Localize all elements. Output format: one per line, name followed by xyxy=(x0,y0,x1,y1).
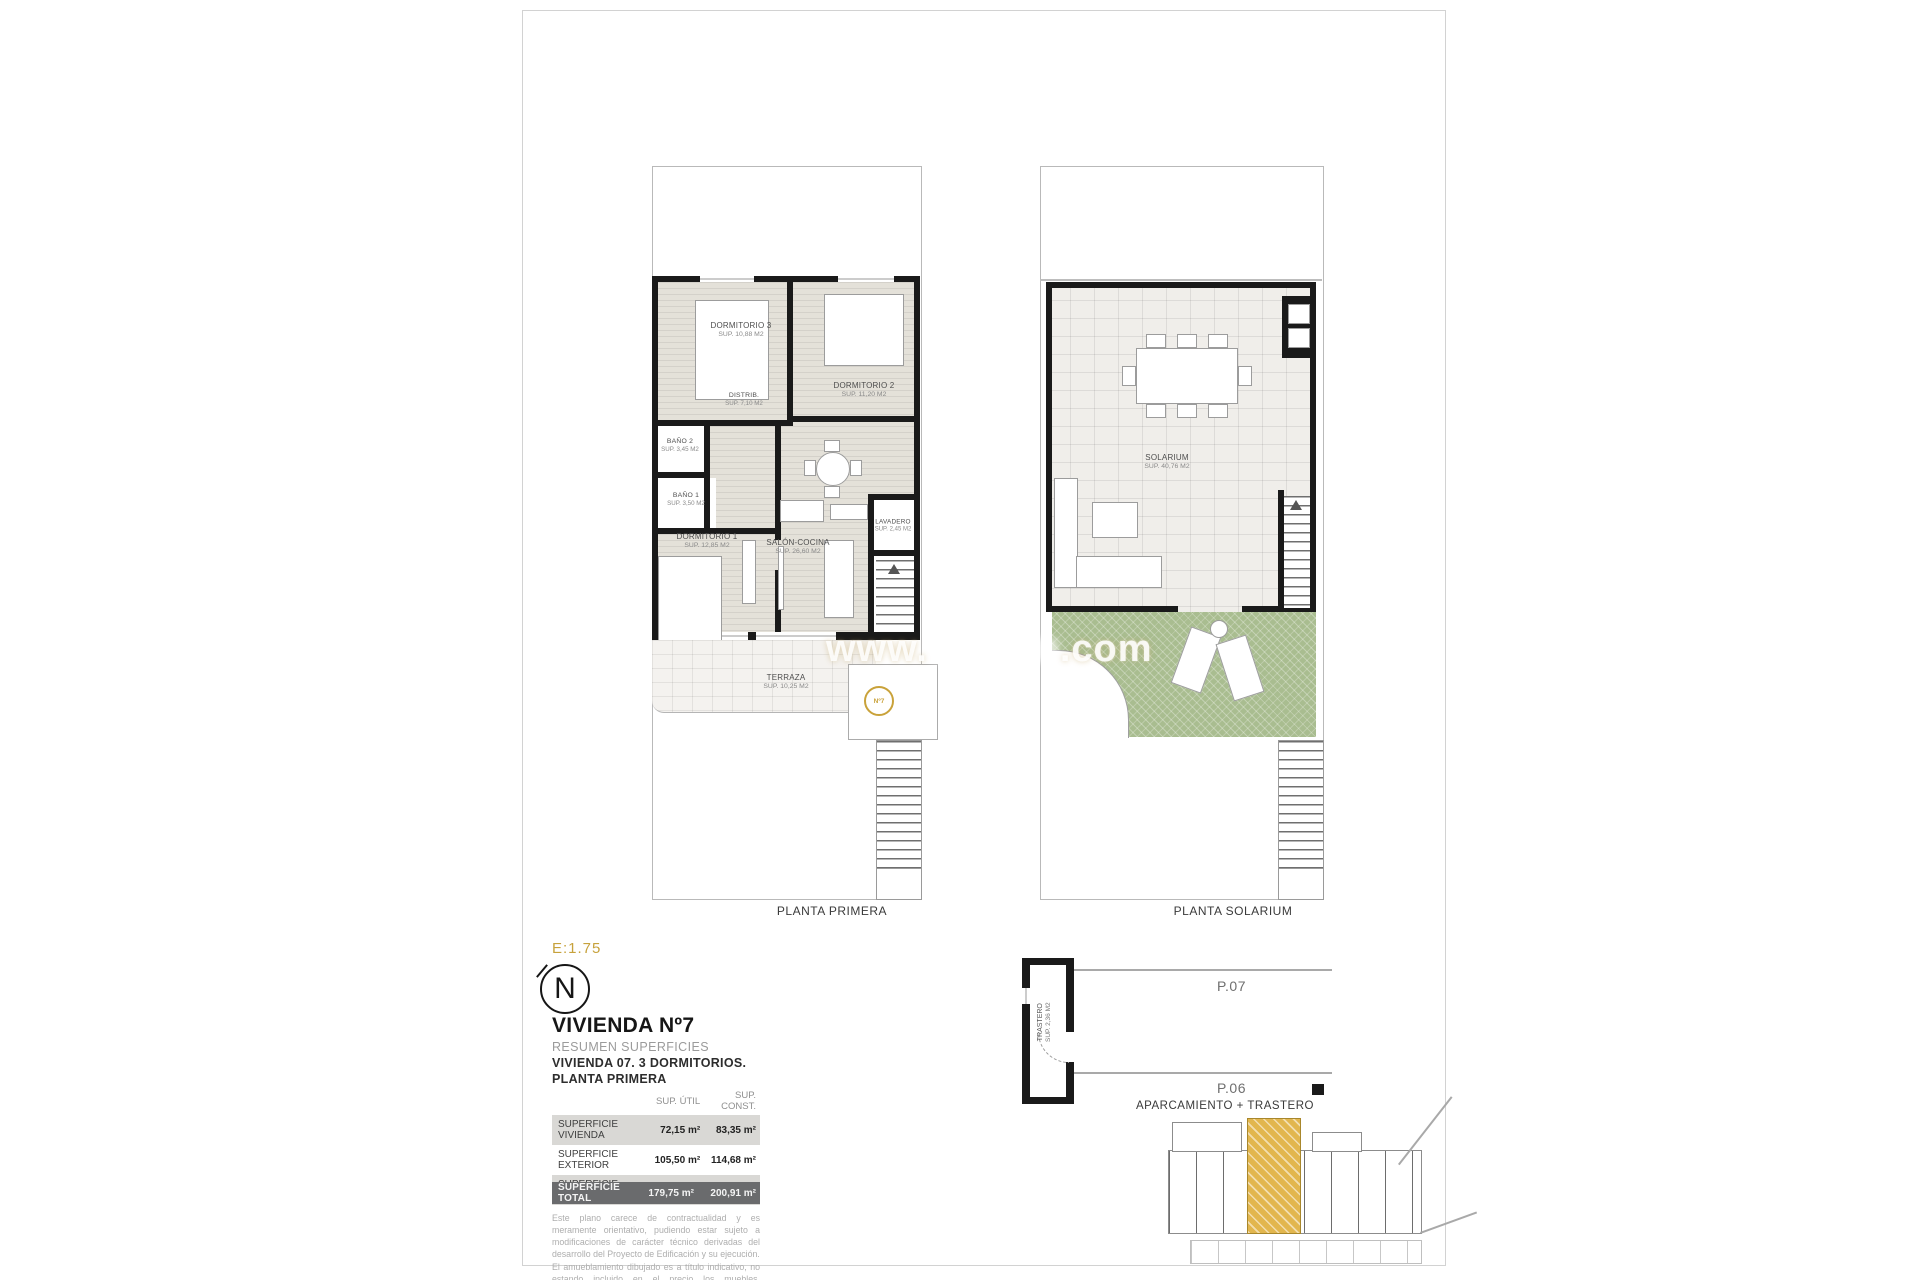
scale-label: E:1.75 xyxy=(552,940,601,957)
wall-segment xyxy=(1312,1084,1324,1095)
sheet-subtitle: RESUMEN SUPERFICIES xyxy=(552,1040,709,1054)
site-block xyxy=(1312,1132,1362,1152)
north-arrow: N xyxy=(540,964,590,1014)
chair-symbol xyxy=(1238,366,1252,386)
stair-landing xyxy=(1278,868,1324,900)
window-icon xyxy=(1022,988,1030,1004)
parcel-number: P.06 xyxy=(1217,1080,1246,1096)
coffee-table-symbol xyxy=(1092,502,1138,538)
wall-segment xyxy=(868,494,920,500)
chair-symbol xyxy=(824,440,840,452)
dining-table-symbol xyxy=(816,452,850,486)
sheet-subtitle: PLANTA PRIMERA xyxy=(552,1072,667,1086)
plan-solarium-caption: PLANTA SOLARIUM xyxy=(1158,904,1308,918)
surface-total-row: SUPERFICIE TOTAL 179,75 m² 200,91 m² xyxy=(552,1182,760,1204)
table-row: SUPERFICIE VIVIENDA 72,15 m² 83,35 m² xyxy=(552,1115,760,1145)
chair-symbol xyxy=(1177,334,1197,348)
window-icon xyxy=(838,276,894,282)
bed-symbol xyxy=(658,556,722,650)
floor-plan-sheet: Nº7 DORMITORIO 3 SUP. 10,88 M2 DORMITORI… xyxy=(0,0,1920,1280)
watermark: www. .com xyxy=(826,628,1153,671)
chair-symbol xyxy=(1177,404,1197,418)
chair-symbol xyxy=(1146,334,1166,348)
table-header-row: SUP. ÚTIL SUP. CONST. xyxy=(552,1088,760,1115)
stair-landing xyxy=(876,868,922,900)
wall-segment xyxy=(1046,282,1052,612)
shaft-box xyxy=(1288,304,1310,324)
wall-segment xyxy=(775,420,781,540)
kitchen-island-symbol xyxy=(780,500,824,522)
chair-symbol xyxy=(850,460,862,476)
exterior-stairs xyxy=(1278,740,1324,870)
bed-symbol xyxy=(695,300,769,400)
room-label: BAÑO 1 SUP. 3,50 M2 xyxy=(667,492,705,508)
plan-primera-caption: PLANTA PRIMERA xyxy=(762,904,902,918)
chair-symbol xyxy=(1146,404,1166,418)
side-table-symbol xyxy=(1210,620,1228,638)
exterior-stairs xyxy=(876,740,922,870)
unit-number-badge: Nº7 xyxy=(864,686,894,716)
storeroom-label: TRASTERO SUP. 2,36 M2 xyxy=(1036,1002,1054,1042)
sofa-symbol xyxy=(1054,478,1078,588)
chair-symbol xyxy=(824,486,840,498)
sheet-subtitle: VIVIENDA 07. 3 DORMITORIOS. xyxy=(552,1056,746,1070)
wall-segment xyxy=(868,550,920,556)
sliding-door-icon xyxy=(756,632,836,640)
watermark-blur xyxy=(930,638,1058,662)
kitchen-counter-symbol xyxy=(830,504,868,520)
room-label: DORMITORIO 2 SUP. 11,20 M2 xyxy=(834,381,895,399)
wall-segment xyxy=(1066,958,1074,1032)
col-header-util: SUP. ÚTIL xyxy=(648,1088,704,1115)
chair-symbol xyxy=(1208,334,1228,348)
wall-segment xyxy=(1046,282,1316,288)
wall-segment xyxy=(787,282,793,422)
room-label: SALÓN-COCINA SUP. 26,60 M2 xyxy=(766,538,829,556)
room-label: TERRAZA SUP. 10,25 M2 xyxy=(763,673,808,691)
wall-segment xyxy=(652,472,710,478)
interior-stairs xyxy=(1284,496,1310,608)
stair-direction-arrow xyxy=(1290,500,1302,510)
room-label: DORMITORIO 1 SUP. 12,85 M2 xyxy=(677,532,738,550)
parcel-line xyxy=(1074,1072,1332,1074)
stair-direction-arrow xyxy=(888,564,900,574)
wardrobe-symbol xyxy=(742,540,756,604)
shaft-box xyxy=(1288,328,1310,348)
window-icon xyxy=(700,276,754,282)
site-block xyxy=(1172,1122,1242,1152)
sofa-symbol xyxy=(1076,556,1162,588)
wall-segment xyxy=(914,276,920,640)
wall-segment xyxy=(868,494,874,640)
parking-spots-row xyxy=(1190,1240,1422,1264)
table-row: SUPERFICIE EXTERIOR 105,50 m² 114,68 m² xyxy=(552,1145,760,1175)
col-header-const: SUP. CONST. xyxy=(704,1088,760,1115)
room-label: SOLARIUM SUP. 40,76 M2 xyxy=(1144,453,1189,471)
sheet-title: VIVIENDA Nº7 xyxy=(552,1014,694,1038)
room-label: DISTRIB. SUP. 7,10 M2 xyxy=(725,392,763,408)
chair-symbol xyxy=(804,460,816,476)
room-label: DORMITORIO 3 SUP. 10,88 M2 xyxy=(711,321,772,339)
parcel-number: P.07 xyxy=(1217,978,1246,994)
parcel-line xyxy=(1074,969,1332,971)
wall-segment xyxy=(652,420,793,426)
chair-symbol xyxy=(1208,404,1228,418)
bed-symbol xyxy=(824,294,904,366)
wall-segment xyxy=(787,416,920,422)
disclaimer-text: Este plano carece de contractualidad y e… xyxy=(552,1212,760,1280)
room-label: LAVADERO SUP. 2,45 M2 xyxy=(875,518,912,534)
wall-segment xyxy=(1022,958,1030,1104)
roof-edge-line xyxy=(1040,279,1322,281)
room-label: BAÑO 2 SUP. 3,45 M2 xyxy=(661,438,699,454)
chair-symbol xyxy=(1122,366,1136,386)
outdoor-table-symbol xyxy=(1136,348,1238,404)
parking-caption: APARCAMIENTO + TRASTERO xyxy=(1120,1100,1330,1112)
highlighted-unit xyxy=(1247,1118,1301,1234)
wall-segment xyxy=(1066,1062,1074,1104)
